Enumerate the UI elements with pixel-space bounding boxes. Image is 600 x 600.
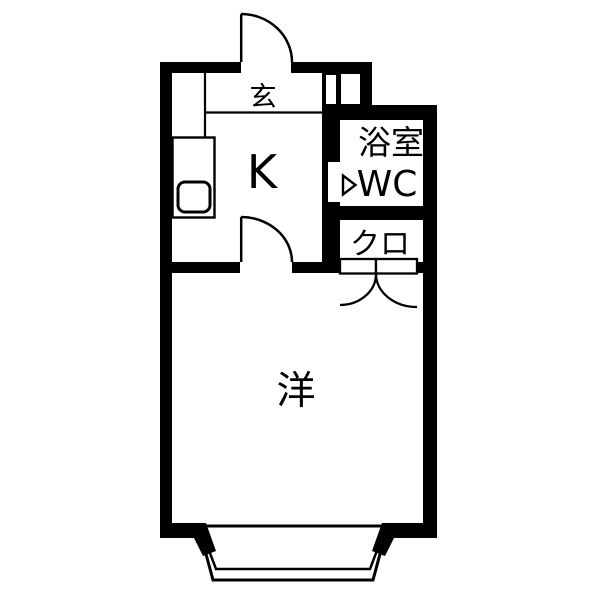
wall-divider-left	[160, 262, 240, 273]
wall-bath-top	[322, 105, 437, 120]
wall-divider-right	[417, 262, 437, 273]
main-room-label: 洋	[276, 369, 315, 414]
bath-room-label-wc: WC	[357, 164, 418, 205]
wall-right	[423, 105, 437, 538]
wall-divider-mid	[292, 262, 340, 273]
bath-door-opening	[328, 162, 341, 202]
entrance-door-swing-arc	[241, 14, 292, 62]
kitchen-door-swing-arc	[241, 217, 292, 262]
kitchen-sink	[178, 182, 210, 212]
floorplan-canvas: 玄 K 浴室 WC クロ 洋	[0, 0, 600, 600]
wall-bath-bottom	[322, 206, 437, 220]
entrance-door-threshold	[241, 62, 291, 73]
bath-door-triangle-icon	[343, 176, 356, 195]
kitchen-room-label: K	[247, 145, 279, 199]
entrance-side-window-b	[341, 74, 360, 104]
linework	[173, 14, 418, 580]
bath-room-label: 浴室	[358, 123, 424, 162]
entrance-room-label: 玄	[250, 82, 277, 113]
kitchen-door-threshold	[241, 262, 291, 273]
floorplan-page: 玄 K 浴室 WC クロ 洋	[0, 0, 600, 600]
balcony-inner-edge	[205, 540, 381, 569]
entrance-side-window-a	[326, 75, 336, 104]
closet-door-swing-arc-right	[376, 274, 417, 307]
balcony-outer-edge	[199, 528, 387, 580]
closet-door-swing-arc-left	[340, 274, 376, 305]
closet-room-label: クロ	[350, 227, 410, 262]
wall-left	[160, 62, 172, 538]
